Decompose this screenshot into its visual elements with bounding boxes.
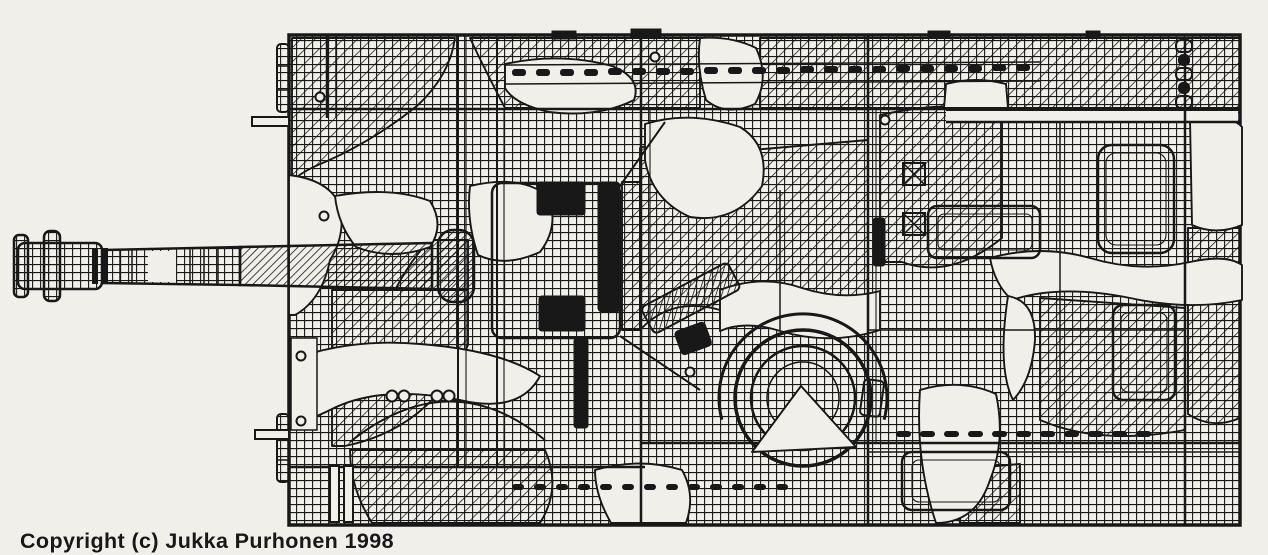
- scanned-drawing-page: Copyright (c) Jukka Purhonen 1998: [0, 0, 1268, 555]
- side-rod-bottom: [255, 430, 289, 439]
- tow-bracket-top: [277, 44, 289, 112]
- barrel-rear-section: [240, 243, 432, 289]
- copyright-text: Copyright (c) Jukka Purhonen 1998: [20, 529, 394, 554]
- tank-top-view-drawing: [0, 0, 1268, 555]
- side-rod-top: [252, 117, 289, 126]
- tow-bracket-bottom: [277, 414, 289, 482]
- muzzle-brake: [14, 231, 102, 301]
